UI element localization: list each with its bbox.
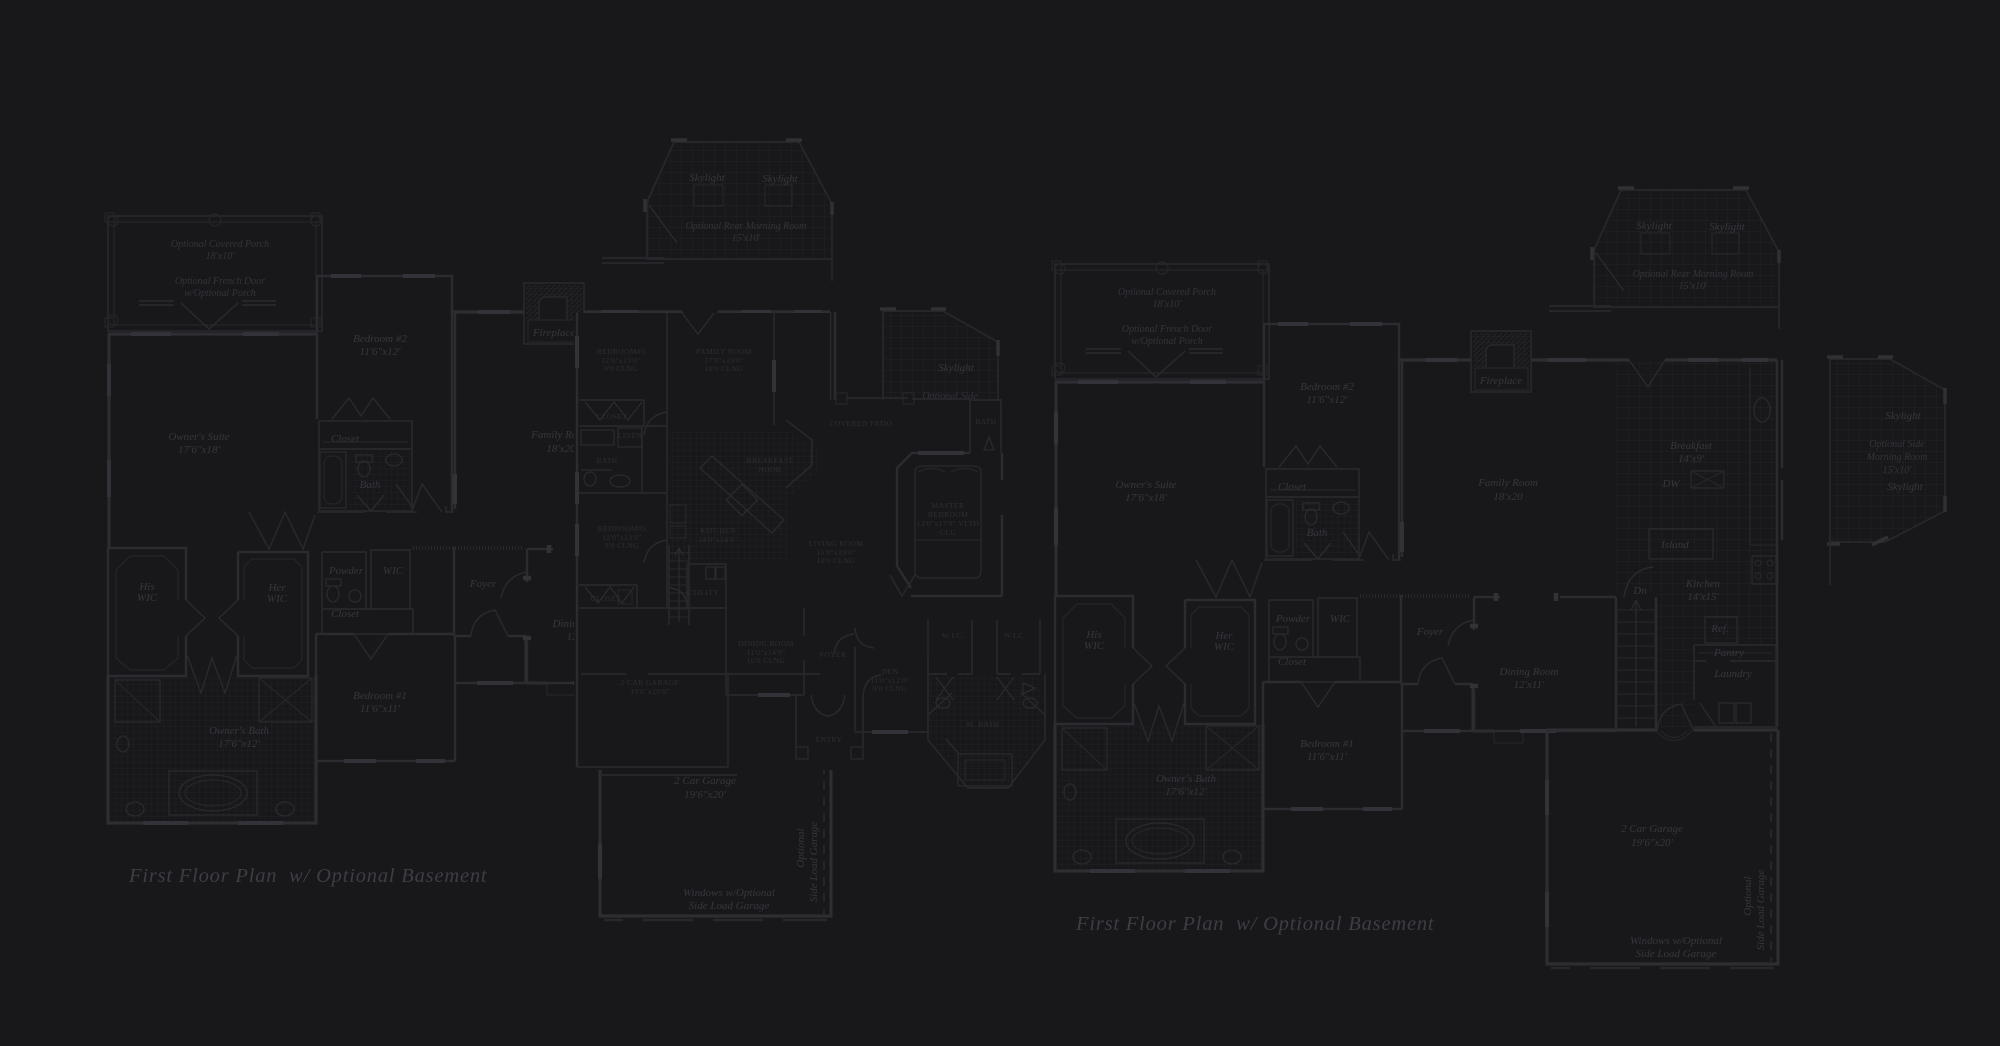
svg-text:10'0 CLNG: 10'0 CLNG <box>705 364 744 373</box>
svg-text:FAMILY ROOM: FAMILY ROOM <box>696 347 752 356</box>
svg-text:19'6"x20'0": 19'6"x20'0" <box>630 687 669 696</box>
svg-text:2 CAR GARAGE: 2 CAR GARAGE <box>621 678 680 687</box>
svg-text:9'0 CLNG: 9'0 CLNG <box>873 684 908 693</box>
svg-text:BEDROOM#3: BEDROOM#3 <box>597 347 646 356</box>
svg-text:COVERED PATIO: COVERED PATIO <box>829 419 892 428</box>
svg-text:NOOK: NOOK <box>758 465 781 474</box>
svg-text:BEDROOM: BEDROOM <box>928 510 968 519</box>
svg-text:CLOSET: CLOSET <box>597 412 628 421</box>
svg-text:CLG: CLG <box>940 528 956 537</box>
svg-text:FOYER: FOYER <box>820 650 847 659</box>
svg-text:BATH: BATH <box>975 417 996 426</box>
svg-text:UTILITY: UTILITY <box>687 588 720 597</box>
svg-text:W.I.C.: W.I.C. <box>1004 631 1026 640</box>
svg-text:13'0"x17'0" VLTD: 13'0"x17'0" VLTD <box>917 519 980 528</box>
svg-text:DEN: DEN <box>882 667 899 676</box>
svg-text:MASTER: MASTER <box>932 501 965 510</box>
svg-text:LIVING ROOM: LIVING ROOM <box>809 539 864 548</box>
svg-text:DINING ROOM: DINING ROOM <box>738 639 793 648</box>
svg-text:LINEN: LINEN <box>618 431 643 440</box>
svg-text:BATH: BATH <box>596 456 617 465</box>
svg-text:M. BATH: M. BATH <box>967 720 1000 729</box>
svg-text:BEDROOM#5: BEDROOM#5 <box>598 524 647 533</box>
svg-text:CLOSET: CLOSET <box>591 594 622 603</box>
svg-text:KITCHEN: KITCHEN <box>700 526 736 535</box>
svg-text:9'0 CLNG: 9'0 CLNG <box>604 364 639 373</box>
svg-text:ENTRY: ENTRY <box>816 735 843 744</box>
svg-text:10'0 CLNG: 10'0 CLNG <box>817 556 856 565</box>
svg-text:14'0"x14'0": 14'0"x14'0" <box>698 535 737 544</box>
svg-text:BREAKFAST: BREAKFAST <box>747 456 794 465</box>
svg-text:10'0 CLNG: 10'0 CLNG <box>747 656 786 665</box>
svg-text:W.I.C.: W.I.C. <box>942 631 964 640</box>
svg-text:9'0 CLNG: 9'0 CLNG <box>605 541 640 550</box>
